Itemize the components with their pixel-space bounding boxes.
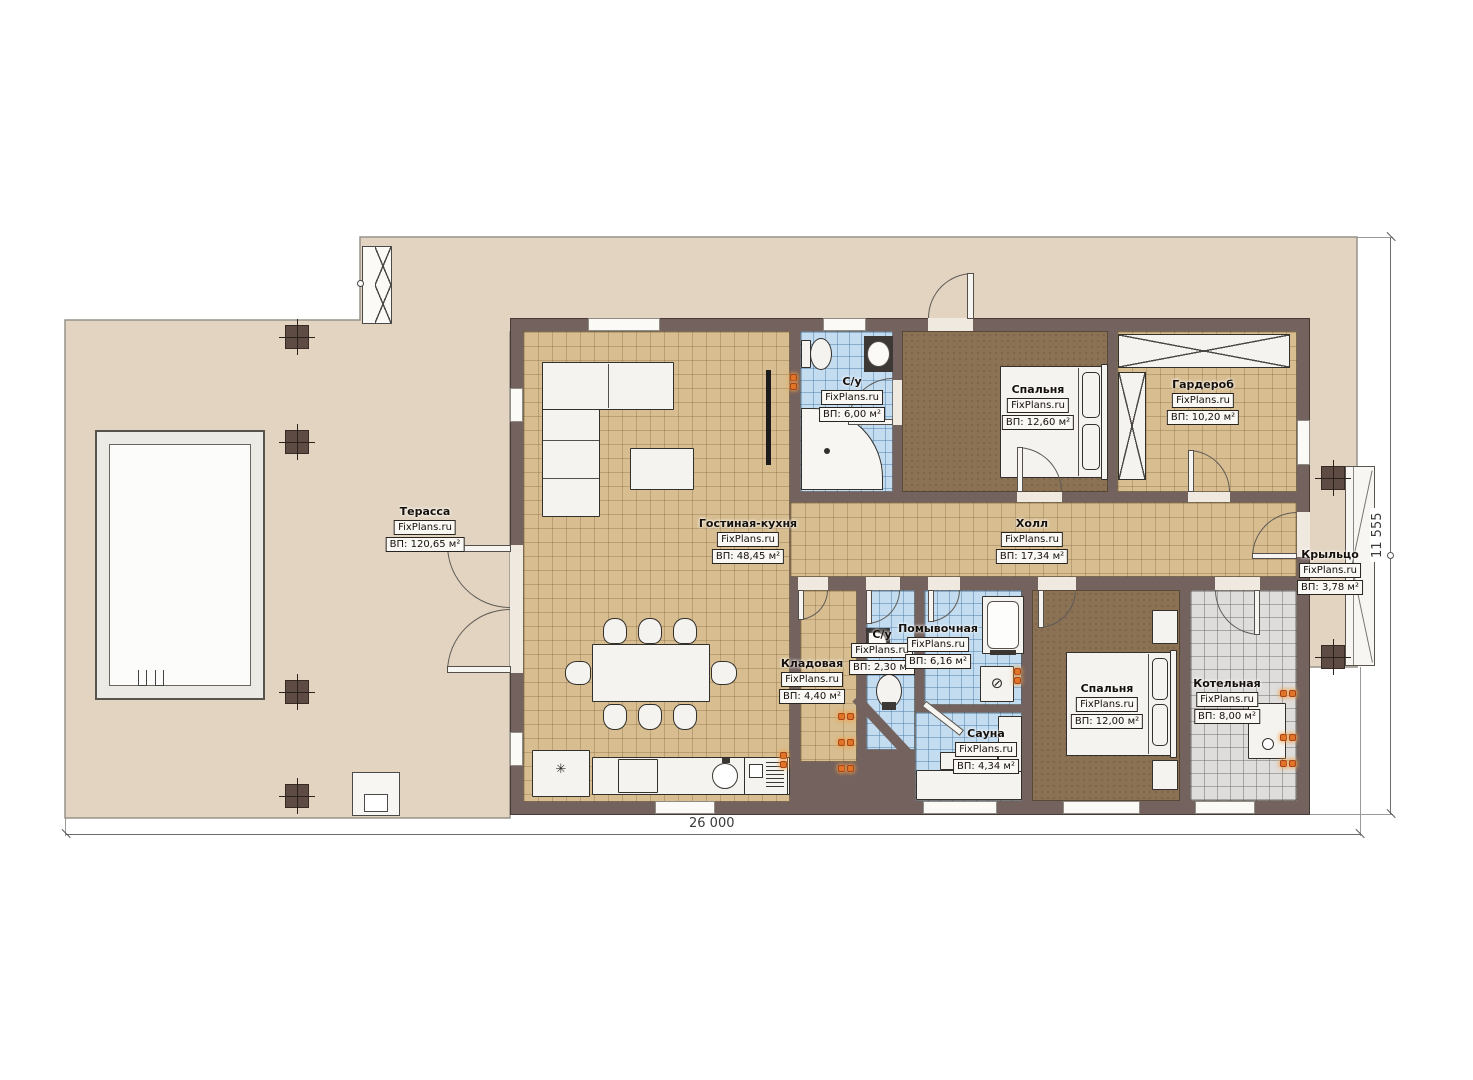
radiator-dot (790, 374, 797, 381)
room-area: ВП: 6,00 м² (819, 407, 885, 422)
room-brand: FixPlans.ru (1007, 398, 1069, 413)
room-area: ВП: 120,65 м² (386, 537, 465, 552)
room-name: Терасса (386, 505, 465, 518)
bathroom-sink (867, 341, 890, 367)
door-opening (1017, 492, 1062, 502)
toilet-base (882, 702, 896, 710)
dining-chair (638, 704, 662, 730)
room-brand: FixPlans.ru (1076, 697, 1138, 712)
floor-plan: ✳ ⊘ (0, 0, 1473, 1080)
room-name: Спальня (1071, 682, 1143, 695)
radiator-icon (780, 752, 787, 768)
room-label-storage: Кладовая FixPlans.ru ВП: 4,40 м² (779, 657, 845, 704)
sofa-cushion-line (608, 364, 609, 408)
shower-inner (987, 601, 1019, 649)
entrance-leaf (1252, 553, 1297, 559)
bed-line (1148, 654, 1149, 754)
room-brand: FixPlans.ru (955, 742, 1017, 757)
room-name: Котельная (1193, 677, 1260, 690)
room-name: Кладовая (779, 657, 845, 670)
dining-chair (711, 661, 737, 685)
door-opening (1038, 577, 1076, 590)
dining-chair (565, 661, 591, 685)
radiator-icon (838, 765, 854, 772)
radiator-dot (1289, 734, 1296, 741)
window (1195, 801, 1255, 814)
room-label-bedroom-bottom: Спальня FixPlans.ru ВП: 12,00 м² (1071, 682, 1143, 729)
radiator-icon (1280, 734, 1296, 741)
window (1297, 420, 1310, 465)
radiator-dot (838, 713, 845, 720)
dining-table (592, 644, 710, 702)
room-brand: FixPlans.ru (394, 520, 456, 535)
bbq-inner (364, 794, 388, 812)
room-label-boiler: Котельная FixPlans.ru ВП: 8,00 м² (1193, 677, 1260, 724)
room-brand: FixPlans.ru (907, 637, 969, 652)
extension-line (1310, 814, 1393, 815)
sauna-bench (916, 770, 1022, 800)
extension-line (1357, 237, 1393, 238)
door-opening (928, 318, 973, 331)
porch-post (1321, 466, 1345, 490)
pergola-post (285, 784, 309, 808)
pool-ladder (138, 670, 147, 686)
terrace-gate-brace (375, 285, 391, 323)
nightstand (1152, 610, 1178, 644)
closet (1118, 334, 1290, 368)
room-name: Крыльцо (1297, 548, 1363, 561)
door-leaf (447, 666, 511, 673)
room-name: Спальня (1002, 383, 1074, 396)
nightstand (1152, 760, 1178, 790)
room-area: ВП: 17,34 м² (996, 549, 1068, 564)
room-brand: FixPlans.ru (1299, 563, 1361, 578)
sink-faucet (722, 758, 730, 763)
dimension-line-horizontal (65, 834, 1360, 835)
radiator-dot (847, 765, 854, 772)
dimension-height-label: 11 555 (1370, 509, 1385, 563)
room-name: Гардероб (1167, 378, 1239, 391)
pillow (1082, 372, 1100, 418)
door-leaf (1038, 590, 1044, 628)
pergola-post (285, 325, 309, 349)
room-label-sauna: Сауна FixPlans.ru ВП: 4,34 м² (953, 727, 1019, 774)
pool-ladder (155, 670, 164, 686)
dimension-width-label: 26 000 (685, 816, 739, 831)
room-brand: FixPlans.ru (1001, 532, 1063, 547)
terrace-gate-brace (375, 247, 391, 285)
room-label-living-kitchen: Гостиная-кухня FixPlans.ru ВП: 48,45 м² (699, 517, 797, 564)
radiator-dot (847, 739, 854, 746)
room-label-porch: Крыльцо FixPlans.ru ВП: 3,78 м² (1297, 548, 1363, 595)
room-area: ВП: 12,00 м² (1071, 714, 1143, 729)
dining-chair (638, 618, 662, 644)
extension-line (1360, 667, 1361, 836)
door-opening (893, 380, 902, 425)
pergola-post (285, 680, 309, 704)
radiator-dot (780, 761, 787, 768)
radiator-dot (838, 739, 845, 746)
sofa-cushion-line (543, 440, 599, 441)
room-area: ВП: 4,40 м² (779, 689, 845, 704)
pool-water (109, 444, 251, 686)
radiator-dot (1280, 734, 1287, 741)
dining-chair (603, 704, 627, 730)
room-name: Сауна (953, 727, 1019, 740)
room-label-bedroom-top: Спальня FixPlans.ru ВП: 12,60 м² (1002, 383, 1074, 430)
door-leaf (866, 590, 872, 624)
door-opening (798, 577, 828, 590)
radiator-icon (1280, 690, 1296, 697)
room-area: ВП: 3,78 м² (1297, 580, 1363, 595)
radiator-dot (790, 383, 797, 390)
door-opening (510, 545, 523, 673)
room-name: Гостиная-кухня (699, 517, 797, 530)
radiator-icon (838, 739, 854, 746)
porch-post (1321, 645, 1345, 669)
door-leaf (1017, 447, 1023, 492)
room-brand: FixPlans.ru (717, 532, 779, 547)
pillow (1152, 658, 1168, 700)
room-brand: FixPlans.ru (1196, 692, 1258, 707)
room-area: ВП: 8,00 м² (1194, 709, 1260, 724)
radiator-icon (1280, 760, 1296, 767)
room-label-wc-top: С/у FixPlans.ru ВП: 6,00 м² (819, 375, 885, 422)
room-area: ВП: 6,16 м² (905, 654, 971, 669)
radiator-dot (1014, 677, 1021, 684)
window (923, 801, 997, 814)
dining-chair (673, 704, 697, 730)
bed-line (1078, 368, 1079, 476)
radiator-dot (1280, 690, 1287, 697)
room-label-wardrobe: Гардероб FixPlans.ru ВП: 10,20 м² (1167, 378, 1239, 425)
kitchen-sink (712, 763, 738, 789)
sofa-cushion-line (543, 478, 599, 479)
dimension-line-vertical (1390, 237, 1391, 814)
room-name: Помывочная (898, 622, 978, 635)
room-area: ВП: 4,34 м² (953, 759, 1019, 774)
window (823, 318, 866, 331)
radiator-icon (1014, 668, 1021, 684)
room-brand: FixPlans.ru (1172, 393, 1234, 408)
pergola-post (285, 430, 309, 454)
radiator-dot (1289, 690, 1296, 697)
door-leaf (1188, 450, 1194, 492)
room-brand: FixPlans.ru (821, 390, 883, 405)
stove (618, 759, 658, 793)
dining-chair (673, 618, 697, 644)
radiator-dot (1289, 760, 1296, 767)
shower-faucet (990, 650, 1016, 655)
room-brand: FixPlans.ru (781, 672, 843, 687)
radiator-dot (838, 765, 845, 772)
door-leaf (1254, 590, 1260, 635)
door-opening (928, 577, 960, 590)
toilet-bowl (810, 338, 832, 370)
radiator-dot (1014, 668, 1021, 675)
tv (766, 370, 771, 465)
radiator-icon (790, 374, 797, 390)
closet (1118, 372, 1146, 480)
room-name: С/у (819, 375, 885, 388)
room-name: Холл (996, 517, 1068, 530)
window (1063, 801, 1140, 814)
pillow (1152, 704, 1168, 746)
headboard (1170, 650, 1177, 758)
room-label-washroom: Помывочная FixPlans.ru ВП: 6,16 м² (898, 622, 978, 669)
room-label-hall: Холл FixPlans.ru ВП: 17,34 м² (996, 517, 1068, 564)
radiator-dot (1280, 760, 1287, 767)
door-opening (1215, 577, 1260, 590)
room-label-terrace: Терасса FixPlans.ru ВП: 120,65 м² (386, 505, 465, 552)
window (510, 388, 523, 422)
window (655, 801, 715, 814)
dining-chair (603, 618, 627, 644)
sauna-stove-icon: ⊘ (980, 674, 1014, 692)
door-opening (1188, 492, 1230, 502)
radiator-dot (780, 752, 787, 759)
door-opening (866, 577, 900, 590)
radiator-icon (838, 713, 854, 720)
room-area: ВП: 10,20 м² (1167, 410, 1239, 425)
room-area: ВП: 12,60 м² (1002, 415, 1074, 430)
pillow (1082, 424, 1100, 470)
headboard (1101, 364, 1108, 480)
gate-hinge (357, 280, 364, 287)
boiler-dial (1262, 738, 1274, 750)
snowflake-icon: ✳ (532, 762, 590, 777)
oven-door (749, 764, 763, 778)
dimension-node (1387, 552, 1394, 559)
bathtub-drain (824, 448, 830, 454)
coffee-table (630, 448, 694, 490)
room-area: ВП: 48,45 м² (712, 549, 784, 564)
radiator-dot (847, 713, 854, 720)
door-leaf (967, 273, 974, 319)
door-leaf (798, 590, 804, 620)
window (510, 732, 523, 766)
door-leaf (928, 590, 934, 622)
window (588, 318, 660, 331)
